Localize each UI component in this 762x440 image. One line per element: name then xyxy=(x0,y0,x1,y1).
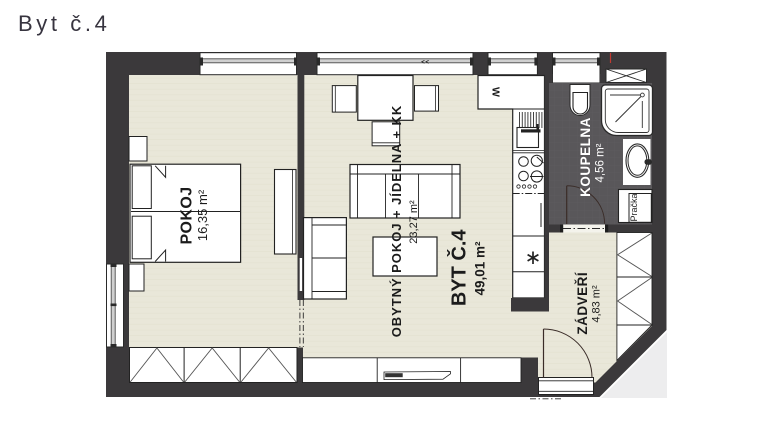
svg-text:KOUPELNA: KOUPELNA xyxy=(578,117,593,197)
svg-text:4,83 m²: 4,83 m² xyxy=(590,285,602,323)
svg-text:POKOJ: POKOJ xyxy=(179,186,196,244)
svg-text:16,35 m²: 16,35 m² xyxy=(195,189,210,241)
svg-text:4,56 m²: 4,56 m² xyxy=(595,143,607,182)
svg-text:OBYTNÝ POKOJ + JÍDELNA + KK: OBYTNÝ POKOJ + JÍDELNA + KK xyxy=(389,105,404,338)
svg-text:23,27 m²: 23,27 m² xyxy=(408,200,420,244)
svg-text:49,01 m²: 49,01 m² xyxy=(473,241,488,296)
svg-text:BYT Č.4: BYT Č.4 xyxy=(447,229,471,307)
svg-text:W: W xyxy=(490,87,502,97)
svg-text:ZÁDVEŘÍ: ZÁDVEŘÍ xyxy=(575,271,590,335)
svg-text:Pračka: Pračka xyxy=(629,193,639,221)
